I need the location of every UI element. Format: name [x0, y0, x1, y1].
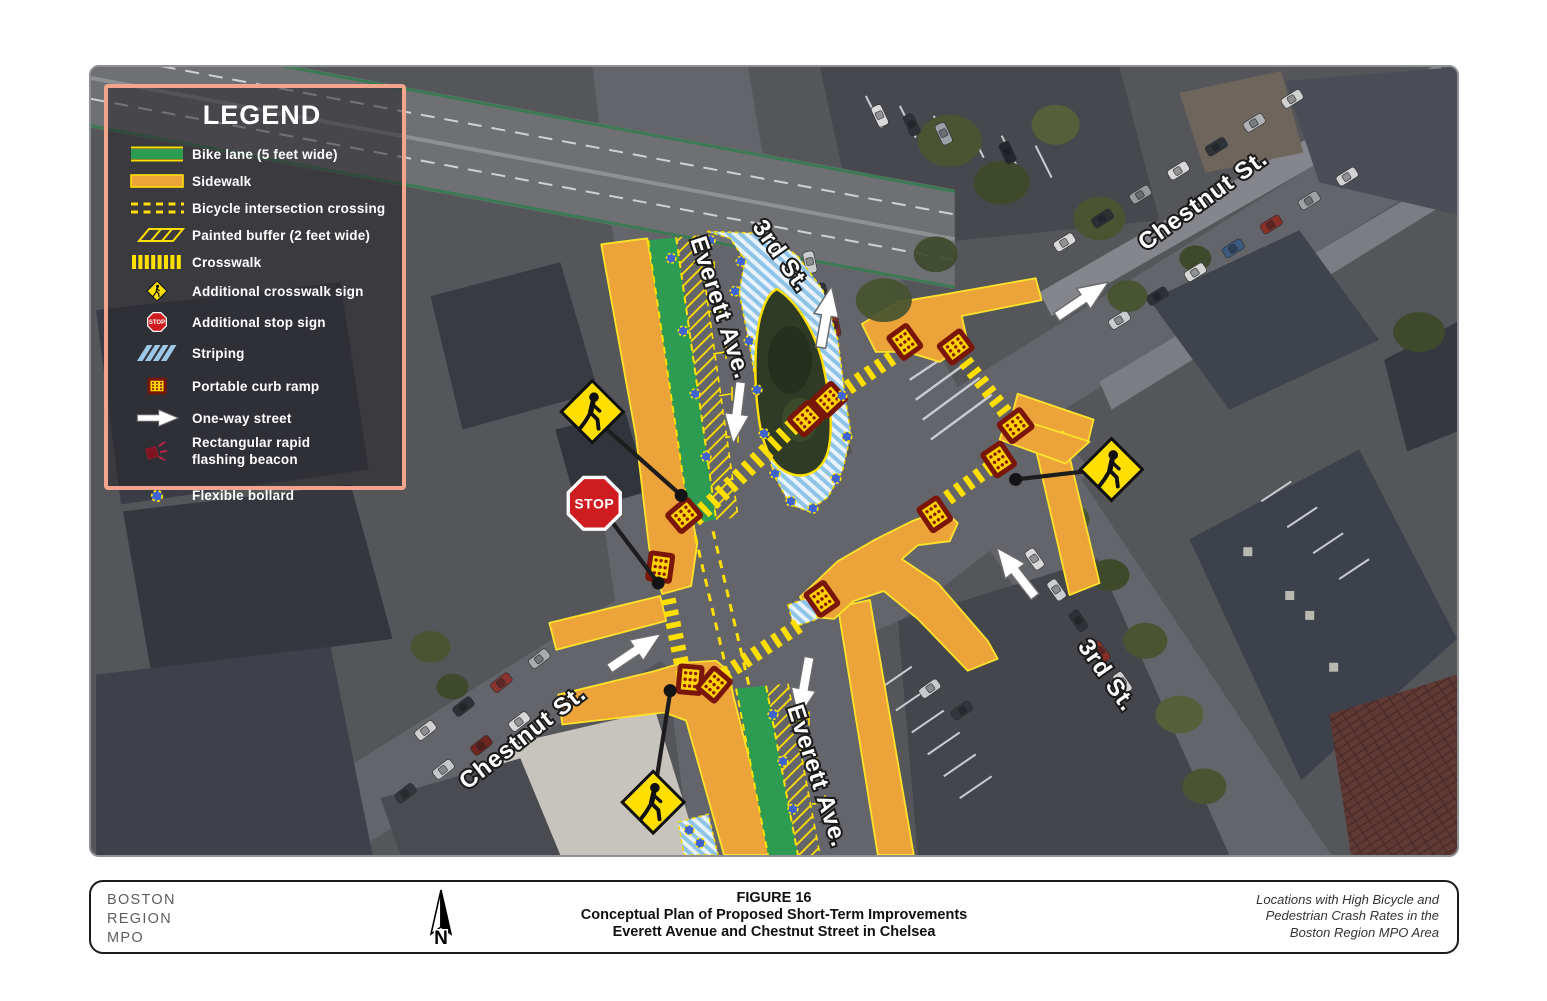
source-note: Locations with High Bicycle and Pedestri… [1256, 892, 1439, 941]
legend-item-additional-crosswalk-sign: Additional crosswalk sign [122, 280, 402, 302]
legend-item-label: Sidewalk [192, 174, 251, 189]
legend-item-label: Flexible bollard [192, 488, 294, 503]
legend-item-sidewalk: Sidewalk [122, 172, 402, 190]
legend-item-label: Bicycle intersection crossing [192, 201, 385, 216]
legend-item-rrfb: Rectangular rapid flashing beacon [122, 435, 402, 469]
legend-item-label: Additional crosswalk sign [192, 284, 364, 299]
painted-buffer-swatch-icon [122, 226, 192, 244]
bike-lane-swatch-icon [122, 145, 192, 163]
striping-swatch-icon [122, 342, 192, 364]
legend-item-bicycle-intersection-crossing: Bicycle intersection crossing [122, 199, 402, 217]
figure-page: Everett Ave. 3rd St. Chestnut St. Chestn… [0, 0, 1547, 1001]
crosswalk-swatch-icon [122, 253, 192, 271]
agency-line: REGION [107, 910, 176, 929]
source-note-line: Pedestrian Crash Rates in the [1256, 908, 1439, 924]
stop-sign-icon: STOP [568, 477, 620, 529]
legend-item-additional-stop-sign: STOP Additional stop sign [122, 311, 402, 333]
north-arrow: N [415, 886, 467, 953]
legend-item-label: Rectangular rapid flashing beacon [192, 435, 342, 469]
stop-sign-icon: STOP [122, 311, 192, 333]
figure-title-block: FIGURE 16 Conceptual Plan of Proposed Sh… [581, 890, 967, 941]
rrfb-icon [122, 437, 192, 467]
source-note-line: Locations with High Bicycle and [1256, 892, 1439, 908]
flexible-bollard-icon [122, 486, 192, 506]
legend-item-flexible-bollard: Flexible bollard [122, 486, 402, 506]
agency-logo: BOSTON REGION MPO [107, 891, 176, 948]
legend-item-painted-buffer: Painted buffer (2 feet wide) [122, 226, 402, 244]
agency-line: BOSTON [107, 891, 176, 910]
title-bar: BOSTON REGION MPO N FIGURE 16 Conceptual… [89, 880, 1459, 954]
legend-item-label: One-way street [192, 411, 292, 426]
legend-item-label: Striping [192, 346, 245, 361]
legend-item-portable-curb-ramp: Portable curb ramp [122, 374, 402, 398]
legend-title: LEGEND [122, 100, 402, 131]
svg-text:STOP: STOP [574, 495, 614, 511]
legend-item-bike-lane: Bike lane (5 feet wide) [122, 145, 402, 163]
legend-item-label: Additional stop sign [192, 315, 326, 330]
figure-title-line1: Conceptual Plan of Proposed Short-Term I… [581, 907, 967, 924]
agency-line: MPO [107, 929, 176, 948]
sidewalk-swatch-icon [122, 172, 192, 190]
source-note-line: Boston Region MPO Area [1256, 925, 1439, 941]
bicycle-crossing-swatch-icon [122, 199, 192, 217]
legend-item-crosswalk: Crosswalk [122, 253, 402, 271]
one-way-arrow-icon [122, 408, 192, 428]
legend: LEGEND Bike lane (5 feet wide) Sidewalk … [104, 84, 406, 490]
legend-item-one-way-street: One-way street [122, 408, 402, 428]
figure-number: FIGURE 16 [581, 890, 967, 907]
crosswalk-sign-icon [122, 280, 192, 302]
legend-item-striping: Striping [122, 342, 402, 364]
svg-text:STOP: STOP [149, 320, 165, 326]
north-label: N [434, 928, 448, 948]
legend-item-label: Portable curb ramp [192, 379, 319, 394]
curb-ramp-icon [122, 374, 192, 398]
legend-item-label: Crosswalk [192, 255, 261, 270]
legend-item-label: Painted buffer (2 feet wide) [192, 228, 370, 243]
figure-title-line2: Everett Avenue and Chestnut Street in Ch… [581, 924, 967, 941]
legend-item-label: Bike lane (5 feet wide) [192, 147, 338, 162]
